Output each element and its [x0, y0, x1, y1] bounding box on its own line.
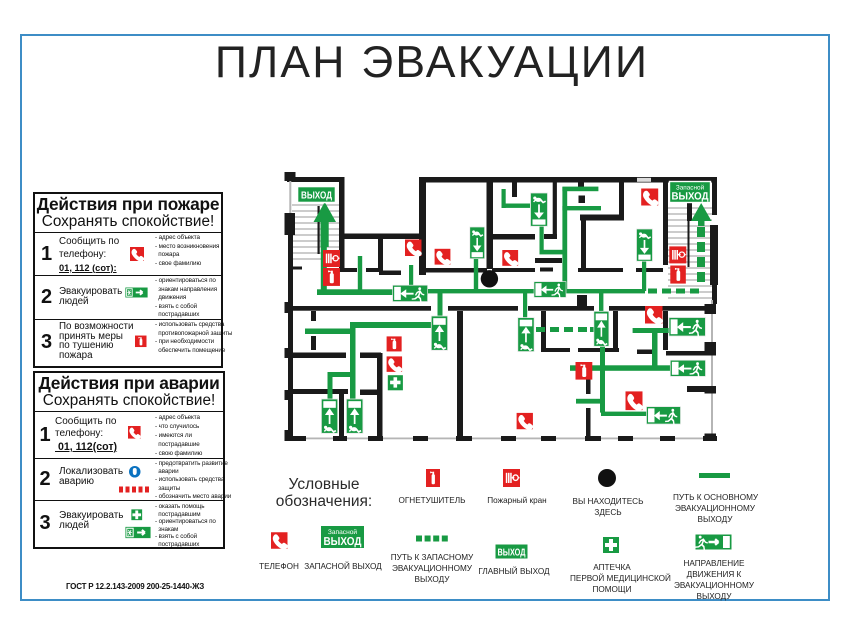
svg-text:ВЫХОД: ВЫХОД [672, 191, 709, 203]
svg-text:ВЫХОД: ВЫХОД [301, 191, 333, 202]
svg-text:Запасной: Запасной [328, 529, 357, 536]
svg-text:ВЫХОД: ВЫХОД [498, 548, 526, 559]
svg-text:ВЫХОД: ВЫХОД [324, 536, 362, 548]
